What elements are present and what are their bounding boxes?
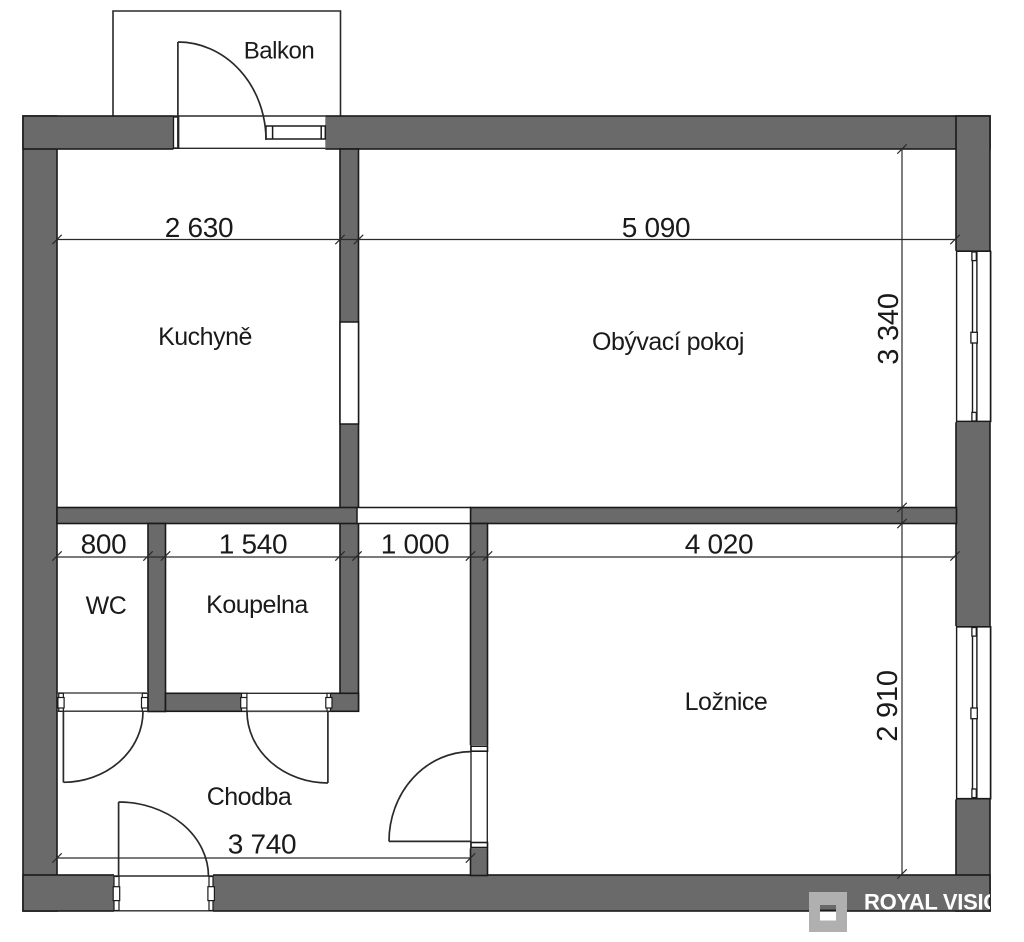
svg-text:4 020: 4 020 (685, 529, 754, 560)
svg-text:1 540: 1 540 (219, 529, 288, 560)
svg-text:Kuchyně: Kuchyně (158, 323, 252, 351)
svg-text:Obývací pokoj: Obývací pokoj (592, 328, 744, 356)
svg-text:Koupelna: Koupelna (206, 591, 308, 619)
svg-text:2 910: 2 910 (872, 670, 904, 742)
svg-text:Balkon: Balkon (244, 38, 314, 65)
svg-text:1 000: 1 000 (381, 529, 450, 560)
svg-text:Ložnice: Ložnice (685, 688, 768, 716)
svg-text:Chodba: Chodba (207, 783, 292, 811)
svg-text:2 630: 2 630 (165, 212, 234, 243)
svg-text:WC: WC (86, 592, 127, 620)
svg-text:5 090: 5 090 (622, 212, 691, 243)
svg-text:800: 800 (81, 529, 127, 560)
svg-text:3 740: 3 740 (228, 829, 297, 860)
svg-text:3 340: 3 340 (873, 293, 905, 365)
